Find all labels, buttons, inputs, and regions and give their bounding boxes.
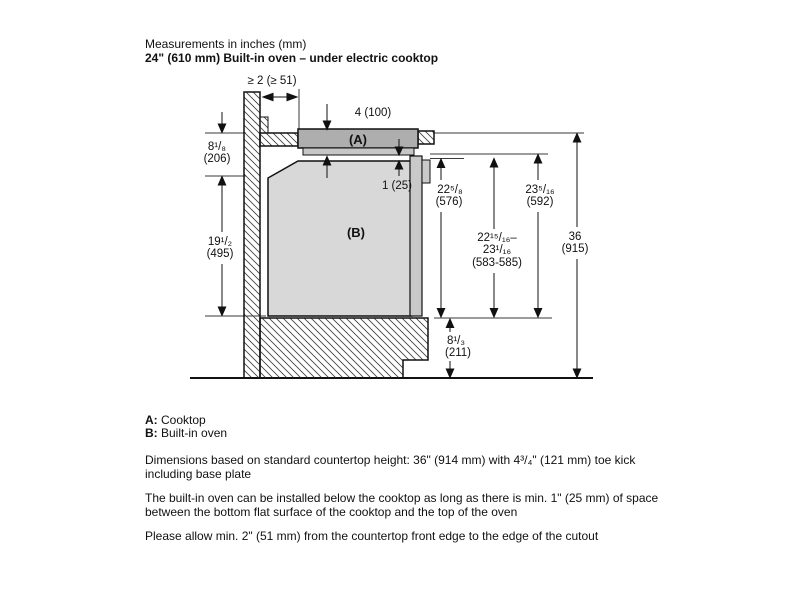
legend-key-a: A: (145, 413, 158, 427)
legend-item-b: B: Built-in oven (145, 427, 227, 440)
dim-counter-to-oven: 8¹/₈ (206) (204, 112, 231, 185)
dim-niche-576-mm: (576) (436, 196, 463, 208)
countertop-right (418, 131, 434, 144)
dim-niche-576: 22⁵/₈ (576) (436, 159, 463, 317)
dim-niche-592: 23⁵/₁₆ (592) (525, 155, 555, 318)
legend: A: Cooktop B: Built-in oven (145, 414, 227, 440)
dim-niche-592-mm: (592) (527, 196, 554, 208)
oven-front-trim (422, 160, 430, 183)
dim-niche-583: 22¹⁵/₁₆– 23¹/₁₆ (583-585) (472, 159, 522, 318)
legend-key-b: B: (145, 426, 158, 440)
dim-counter-height-in: 36 (569, 231, 582, 243)
countertop-left (260, 133, 298, 146)
dim-niche-583-mm: (583-585) (472, 257, 522, 269)
note-countertop-height: Dimensions based on standard countertop … (145, 454, 665, 481)
dim-niche-592-in: 23⁵/₁₆ (525, 184, 555, 196)
label-oven-b: (B) (347, 225, 365, 240)
dim-base-height: 8¹/₃ (211) (445, 319, 471, 378)
note-front-edge: Please allow min. 2" (51 mm) from the co… (145, 530, 665, 544)
installation-sheet-page: Measurements in inches (mm) 24" (610 mm)… (0, 0, 800, 600)
dim-wall-clearance-label: ≥ 2 (≥ 51) (247, 75, 296, 87)
dim-counter-height-mm: (915) (562, 243, 589, 255)
dim-oven-height-mm: (495) (207, 248, 234, 260)
legend-text-a: Cooktop (158, 413, 206, 427)
dim-oven-height-in: 19¹/₂ (208, 236, 232, 248)
label-cooktop-a: (A) (349, 132, 367, 147)
dim-cooktop-depth-label: 4 (100) (355, 107, 392, 119)
dim-gap-label: 1 (25) (382, 180, 412, 192)
dim-niche-583-in1: 22¹⁵/₁₆– (477, 232, 517, 244)
base-plate (260, 318, 428, 378)
note-min-gap: The built-in oven can be installed below… (145, 492, 665, 519)
wall-cleat (260, 117, 268, 133)
legend-text-b: Built-in oven (158, 426, 227, 440)
dim-base-height-in: 8¹/₃ (447, 335, 465, 347)
dim-niche-583-in2: 23¹/₁₆ (483, 244, 512, 256)
notes: Dimensions based on standard countertop … (145, 454, 665, 555)
dim-oven-height: 19¹/₂ (495) (207, 185, 234, 316)
dim-base-height-mm: (211) (445, 347, 471, 359)
wall (244, 92, 260, 378)
dim-niche-576-in: 22⁵/₈ (437, 184, 463, 196)
dim-counter-to-oven-in: 8¹/₈ (208, 141, 226, 153)
dim-counter-height: 36 (915) (562, 134, 589, 378)
installation-diagram: (A) (B) ≥ 2 (≥ 51) 4 (100) 1 (25) (0, 0, 800, 410)
dim-counter-to-oven-mm: (206) (204, 153, 231, 165)
